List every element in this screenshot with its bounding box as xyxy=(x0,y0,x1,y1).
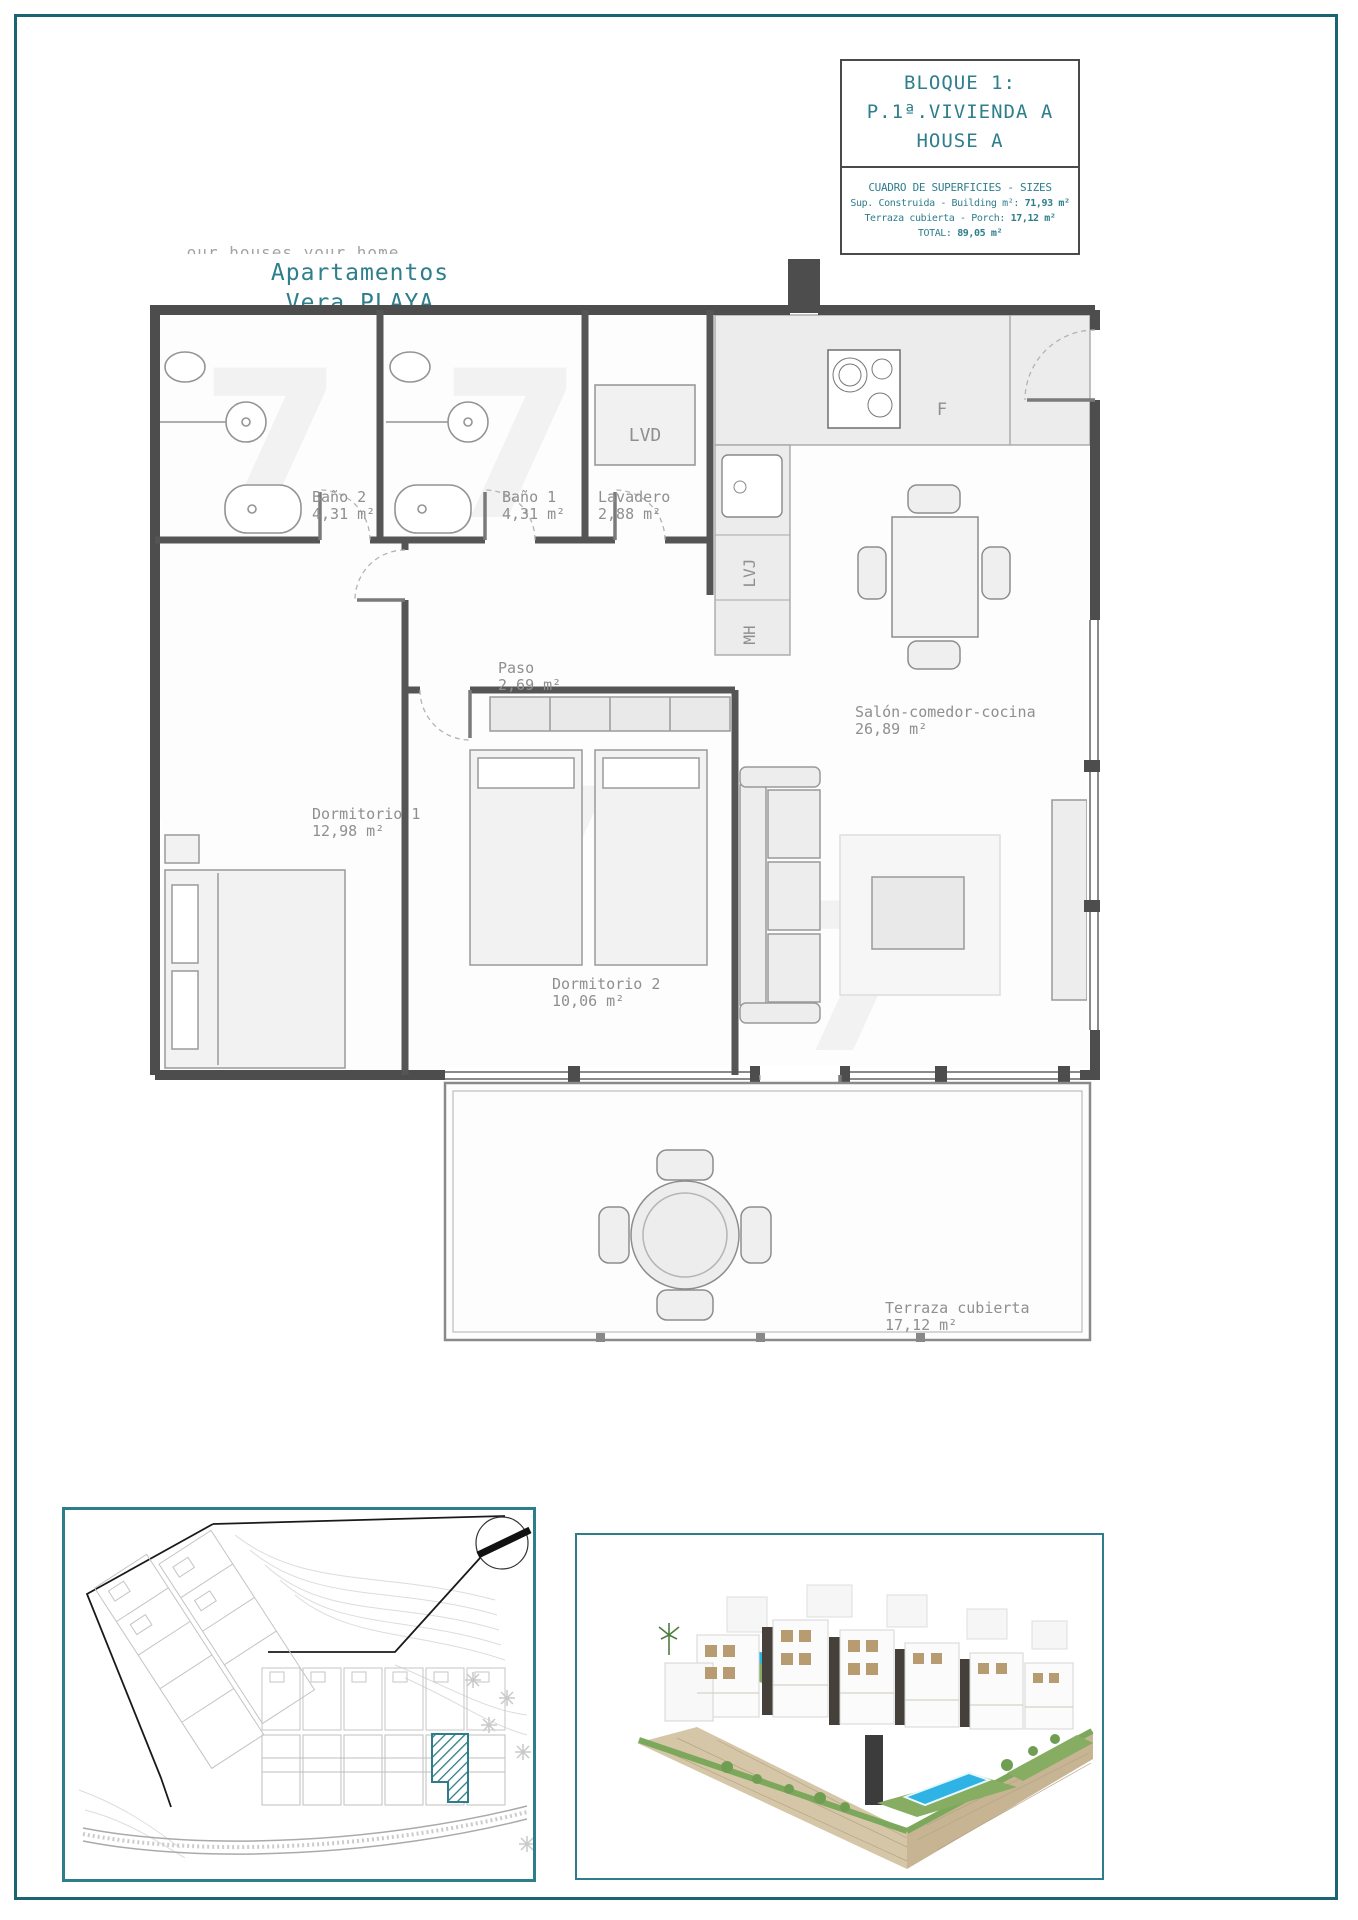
site-plan-box xyxy=(62,1507,536,1882)
nightstand xyxy=(165,835,199,863)
sofa-cushion xyxy=(768,790,820,858)
sofa-cushion xyxy=(768,934,820,1002)
dining-chair xyxy=(908,485,960,513)
terrace-chair xyxy=(599,1207,629,1263)
dining-table xyxy=(892,517,978,637)
sizes-table: CUADRO DE SUPERFICIES - SIZES Sup. Const… xyxy=(842,168,1078,253)
sizes-row-building: Sup. Construida - Building m²: 71,93 m² xyxy=(842,196,1078,211)
laundry-fixtures: LVD xyxy=(595,385,695,465)
washbasin xyxy=(165,352,205,382)
terrace-table xyxy=(631,1181,739,1289)
title-block: BLOQUE 1: P.1ª.VIVIENDA A HOUSE A CUADRO… xyxy=(840,59,1080,255)
row-units-upper xyxy=(262,1668,505,1730)
aerial-render xyxy=(577,1535,1102,1878)
dining-chair xyxy=(858,547,886,599)
dishwasher-label: LVJ xyxy=(740,559,759,588)
unit-title: BLOQUE 1: P.1ª.VIVIENDA A HOUSE A xyxy=(842,61,1078,168)
kitchen-sink xyxy=(722,455,782,517)
sizes-row-total: TOTAL: 89,05 m² xyxy=(842,226,1078,241)
washbasin xyxy=(390,352,430,382)
chimney-shaft xyxy=(788,259,820,313)
highlighted-unit xyxy=(432,1734,468,1802)
sideboard xyxy=(1052,800,1087,1000)
sofa-cushion xyxy=(768,862,820,930)
room-area-hall: 2,69 m² xyxy=(498,676,561,694)
room-area-bath2: 4,31 m² xyxy=(312,505,375,523)
stair-core xyxy=(865,1735,883,1805)
room-label-bedroom1: Dormitorio 1 xyxy=(312,805,420,823)
floor-plan: 7 7 7 7 7 LVD F xyxy=(140,245,1100,1355)
room-area-laundry: 2,88 m² xyxy=(598,505,661,523)
floor-plan-drawing: 7 7 7 7 7 LVD F xyxy=(140,245,1100,1355)
pillow xyxy=(172,885,198,963)
road xyxy=(83,1806,527,1854)
building xyxy=(1025,1663,1073,1729)
sizes-row-porch: Terraza cubierta - Porch: 17,12 m² xyxy=(842,211,1078,226)
upper-building-cluster xyxy=(95,1518,320,1769)
unit-title-line-2: P.1ª.VIVIENDA A xyxy=(844,98,1076,127)
room-label-bath1: Baño 1 xyxy=(502,488,556,506)
pillow xyxy=(172,971,198,1049)
dining-chair xyxy=(982,547,1010,599)
kitchen-counter-top xyxy=(715,315,1090,445)
bedroom-1-furniture xyxy=(165,835,345,1068)
room-label-bath2: Baño 2 xyxy=(312,488,366,506)
room-area-bedroom1: 12,98 m² xyxy=(312,822,384,840)
room-area-bath1: 4,31 m² xyxy=(502,505,565,523)
svg-text:7: 7 xyxy=(440,328,583,566)
sizes-table-header: CUADRO DE SUPERFICIES - SIZES xyxy=(842,180,1078,196)
floorplan-page: { "colors": { "accent_teal": "#2e7e8c", … xyxy=(0,0,1358,1920)
palm-tree xyxy=(659,1623,679,1655)
coffee-table xyxy=(872,877,964,949)
pillow xyxy=(478,758,574,788)
terrace-chair xyxy=(657,1290,713,1320)
toilet xyxy=(225,485,301,533)
toilet xyxy=(395,485,471,533)
room-area-bedroom2: 10,06 m² xyxy=(552,992,624,1010)
microwave-oven-label: MH xyxy=(740,625,759,644)
sofa-back xyxy=(740,785,766,1005)
room-area-terrace: 17,12 m² xyxy=(885,1316,957,1334)
room-label-hall: Paso xyxy=(498,659,534,677)
sofa-armrest xyxy=(740,767,820,787)
room-label-laundry: Lavadero xyxy=(598,488,670,506)
pillow xyxy=(603,758,699,788)
room-label-terrace: Terraza cubierta xyxy=(885,1299,1030,1317)
terrace-chair xyxy=(657,1150,713,1180)
room-label-bedroom2: Dormitorio 2 xyxy=(552,975,660,993)
room-area-living: 26,89 m² xyxy=(855,720,927,738)
sofa-armrest xyxy=(740,1003,820,1023)
terrace-chair xyxy=(741,1207,771,1263)
washer-dryer-label: LVD xyxy=(629,425,662,446)
unit-title-line-3: HOUSE A xyxy=(844,127,1076,156)
site-plan-drawing xyxy=(65,1510,533,1879)
unit-title-line-1: BLOQUE 1: xyxy=(844,69,1076,98)
room-label-living: Salón-comedor-cocina xyxy=(855,703,1036,721)
fridge-label: F xyxy=(937,400,947,420)
dining-chair xyxy=(908,641,960,669)
aerial-render-box xyxy=(575,1533,1104,1880)
